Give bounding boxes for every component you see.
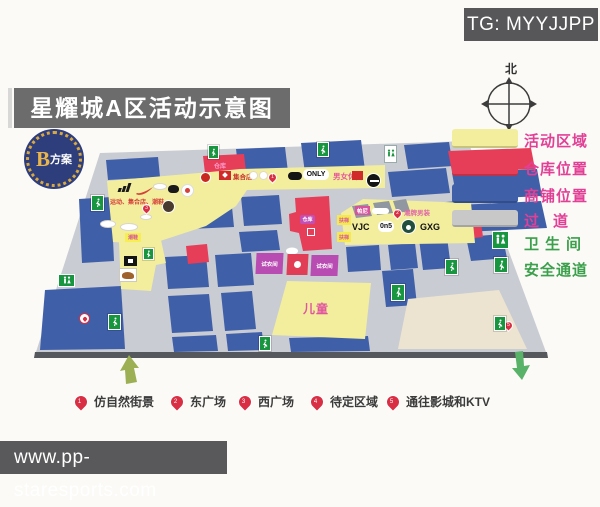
only-store-label: ONLY [303,169,329,180]
entrance-arrow-up [120,355,139,384]
brand-logo-oval [120,223,138,231]
shop-block [241,195,282,226]
exit-icon [91,195,104,211]
footer-legend-item-5: 5 通往影城和KTV [386,393,490,410]
shop-block [221,291,256,331]
website-url: www.pp-staresports.com [0,441,227,474]
escalator-tag-2: 扶梯 [337,232,351,242]
shop-block [346,245,381,272]
footer-legend-label: 西广场 [258,393,294,410]
skull-logo-icon [162,200,175,213]
puma-logo-icon [168,185,179,193]
exit-icon [445,259,458,275]
phone-logo-icon [124,256,137,266]
footer-legend-item-1: 1 仿自然街景 [74,393,154,410]
brand-logo-oval [153,183,167,190]
plan-text: 方案 [50,151,72,167]
compass-icon [486,82,532,126]
warehouse-block [186,244,209,264]
shop-block [404,142,453,169]
exit-icon [208,145,219,159]
tg-badge: TG: MYYJJPP [464,8,598,41]
toilet-icon [384,145,397,163]
exit-icon [143,248,154,260]
legend-swatch-warehouse [452,157,518,176]
legend-label-shops: 商铺位置 [524,185,588,206]
exit-icon [494,316,506,331]
brand-logo-red-square [352,171,363,180]
legend-label-safety: 安全通道 [524,259,588,280]
footer-legend-item-4: 4 待定区域 [310,393,378,410]
pin-number: 4 [311,397,321,407]
footer-legend-label: 通往影城和KTV [406,393,490,410]
escalator-tag-1: 扶梯 [337,215,351,225]
pin-number: 2 [394,210,401,217]
pin-number: 3 [143,205,150,212]
warehouse-icon [307,228,315,236]
warehouse-small-block [286,254,308,275]
legend-label-activity: 活动区域 [524,130,588,151]
brand-logo-oval [100,220,116,228]
legend-label-aisle: 过道 [524,210,582,231]
exit-icon [259,336,271,351]
map-pin-icon: 5 [383,392,403,412]
brand-logo-red-circle [200,172,211,183]
footer-legend-label: 待定区域 [330,393,378,410]
toilet-icon [58,274,75,287]
brand-logo-circle [259,171,268,180]
warehouse-tag-center: 仓库 [300,215,315,224]
pin-number: 1 [269,174,276,181]
map-pin-icon: 1 [71,392,91,412]
pin-number: 5 [505,322,512,329]
toilet-icon [492,231,509,249]
shop-block [172,335,218,352]
warehouse-tag-top: 仓库 [214,161,226,170]
map-pin-icon: 2 [167,392,187,412]
brand-logo-black-circle [366,173,381,188]
shop-block [388,243,418,270]
flower-icon [294,261,301,268]
shop-block [388,168,450,197]
camel-logo-icon [119,268,137,282]
compass-north-label: 北 [505,60,517,77]
menswear-zone-label: 潮牌男装 [404,207,430,217]
pin-number: 2 [171,397,181,407]
legend-label-toilet: 卫生间 [524,233,587,254]
fitting-room-2: 试衣间 [310,255,338,276]
legend-swatch-aisle [452,210,518,227]
shop-block [168,294,213,333]
map-pin-icon: 4 [307,392,327,412]
small-white-pill [372,208,389,214]
footer-legend-label: 仿自然街景 [94,393,154,410]
legend-swatch-shops [452,184,518,203]
legend-swatch-activity [452,129,518,148]
brand-logo-circle [181,184,194,197]
page-title: 星耀城A区活动示意图 [14,88,290,128]
banner-tick [8,88,12,128]
map-pin-4 [79,313,90,324]
shop-block [106,157,160,180]
pin-number: 3 [239,397,249,407]
shop-block [239,230,280,252]
brand-logo-black-pill [288,172,302,180]
fitting-room-1: 试衣间 [255,253,283,274]
pani-tag: 帕尼 [355,206,370,215]
brand-logo-red-square [219,171,231,180]
kids-zone-label: 儿童 [303,300,329,317]
exit-icon [391,284,405,301]
footer-legend-label: 东广场 [190,393,226,410]
brand-logo-circle [249,171,258,180]
plan-b-badge: B 方案 [26,131,82,187]
vjc-brand-label: VJC [352,222,370,232]
shop-block [215,253,254,287]
nike-logo-icon [136,186,154,195]
pin-number: 5 [387,397,397,407]
on5-brand-label: 0n5 [378,221,394,232]
brand-logo-green-circle [401,219,416,234]
plan-letter: B [36,147,50,172]
footer-legend-item-3: 3 西广场 [238,393,294,410]
sports-zone-text: 运动、集合店、潮鞋 [110,197,164,206]
exit-icon [317,142,329,157]
flyer-page: { "header": { "title": "星耀城A区活动示意图", "tg… [0,0,600,480]
map-bottom-edge [34,352,548,358]
exit-icon [494,257,508,273]
footer-legend-item-2: 2 东广场 [170,393,226,410]
legend-label-warehouse: 仓库位置 [524,158,588,179]
map-pin-icon: 3 [235,392,255,412]
gxg-brand-label: GXG [420,222,440,232]
shoes-tag: 潮鞋 [125,233,141,242]
pin-number: 1 [75,397,85,407]
exit-icon [108,314,121,330]
